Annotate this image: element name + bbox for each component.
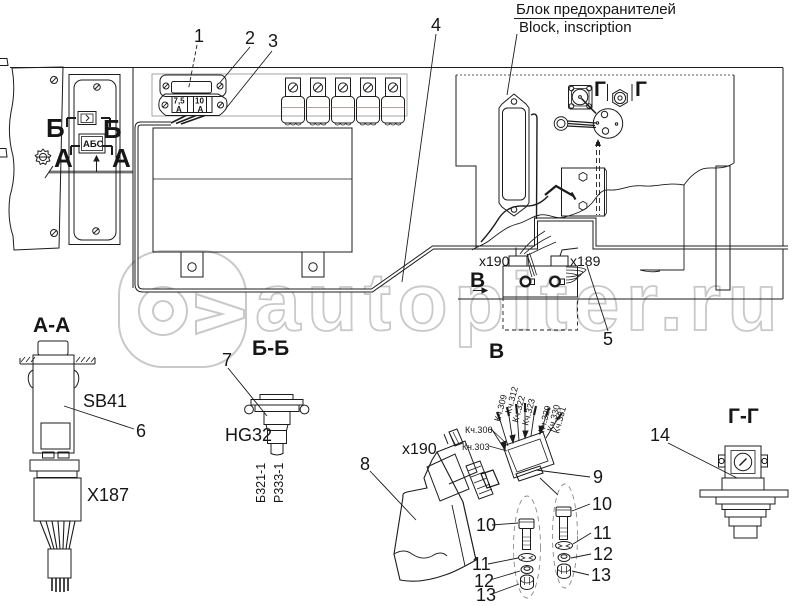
svg-text:14: 14 — [650, 425, 670, 445]
svg-text:12: 12 — [593, 544, 613, 564]
svg-text:Г: Г — [635, 78, 647, 101]
svg-text:Б: Б — [103, 114, 122, 144]
svg-text:Б: Б — [46, 113, 65, 143]
svg-text:6: 6 — [136, 421, 146, 441]
svg-text:5: 5 — [603, 329, 613, 349]
svg-text:13: 13 — [476, 585, 496, 605]
svg-text:11: 11 — [593, 523, 612, 543]
svg-text:Кч.306: Кч.306 — [465, 425, 492, 435]
svg-text:8: 8 — [360, 454, 370, 474]
svg-text:4: 4 — [431, 15, 441, 35]
svg-text:x190: x190 — [479, 253, 510, 269]
svg-text:Б321-1: Б321-1 — [254, 463, 268, 503]
svg-text:АБС: АБС — [83, 139, 104, 150]
svg-text:9: 9 — [593, 467, 603, 487]
svg-text:А: А — [112, 143, 131, 173]
svg-text:3: 3 — [268, 31, 278, 51]
svg-text:X187: X187 — [87, 485, 129, 505]
svg-text:Р333-1: Р333-1 — [272, 463, 286, 503]
svg-text:Block, inscription: Block, inscription — [519, 19, 632, 36]
svg-text:HG32: HG32 — [225, 425, 272, 445]
svg-text:Г: Г — [594, 78, 606, 101]
svg-text:Б-Б: Б-Б — [252, 337, 289, 360]
svg-text:13: 13 — [591, 565, 611, 585]
svg-text:Г-Г: Г-Г — [728, 405, 759, 428]
svg-text:А: А — [198, 105, 204, 114]
svg-text:А: А — [176, 105, 182, 114]
svg-text:x189: x189 — [570, 253, 601, 269]
svg-text:SB41: SB41 — [83, 391, 127, 411]
svg-text:10: 10 — [592, 494, 612, 514]
svg-text:Блок предохранителей: Блок предохранителей — [516, 1, 676, 18]
svg-text:2: 2 — [245, 28, 255, 48]
svg-text:Кч.303: Кч.303 — [462, 442, 489, 452]
svg-text:autopiter.ru: autopiter.ru — [255, 257, 784, 348]
svg-text:А-А: А-А — [33, 314, 70, 337]
svg-text:7: 7 — [222, 350, 232, 370]
svg-text:x190: x190 — [402, 441, 437, 458]
svg-text:В: В — [489, 340, 504, 363]
svg-text:1: 1 — [194, 26, 204, 46]
